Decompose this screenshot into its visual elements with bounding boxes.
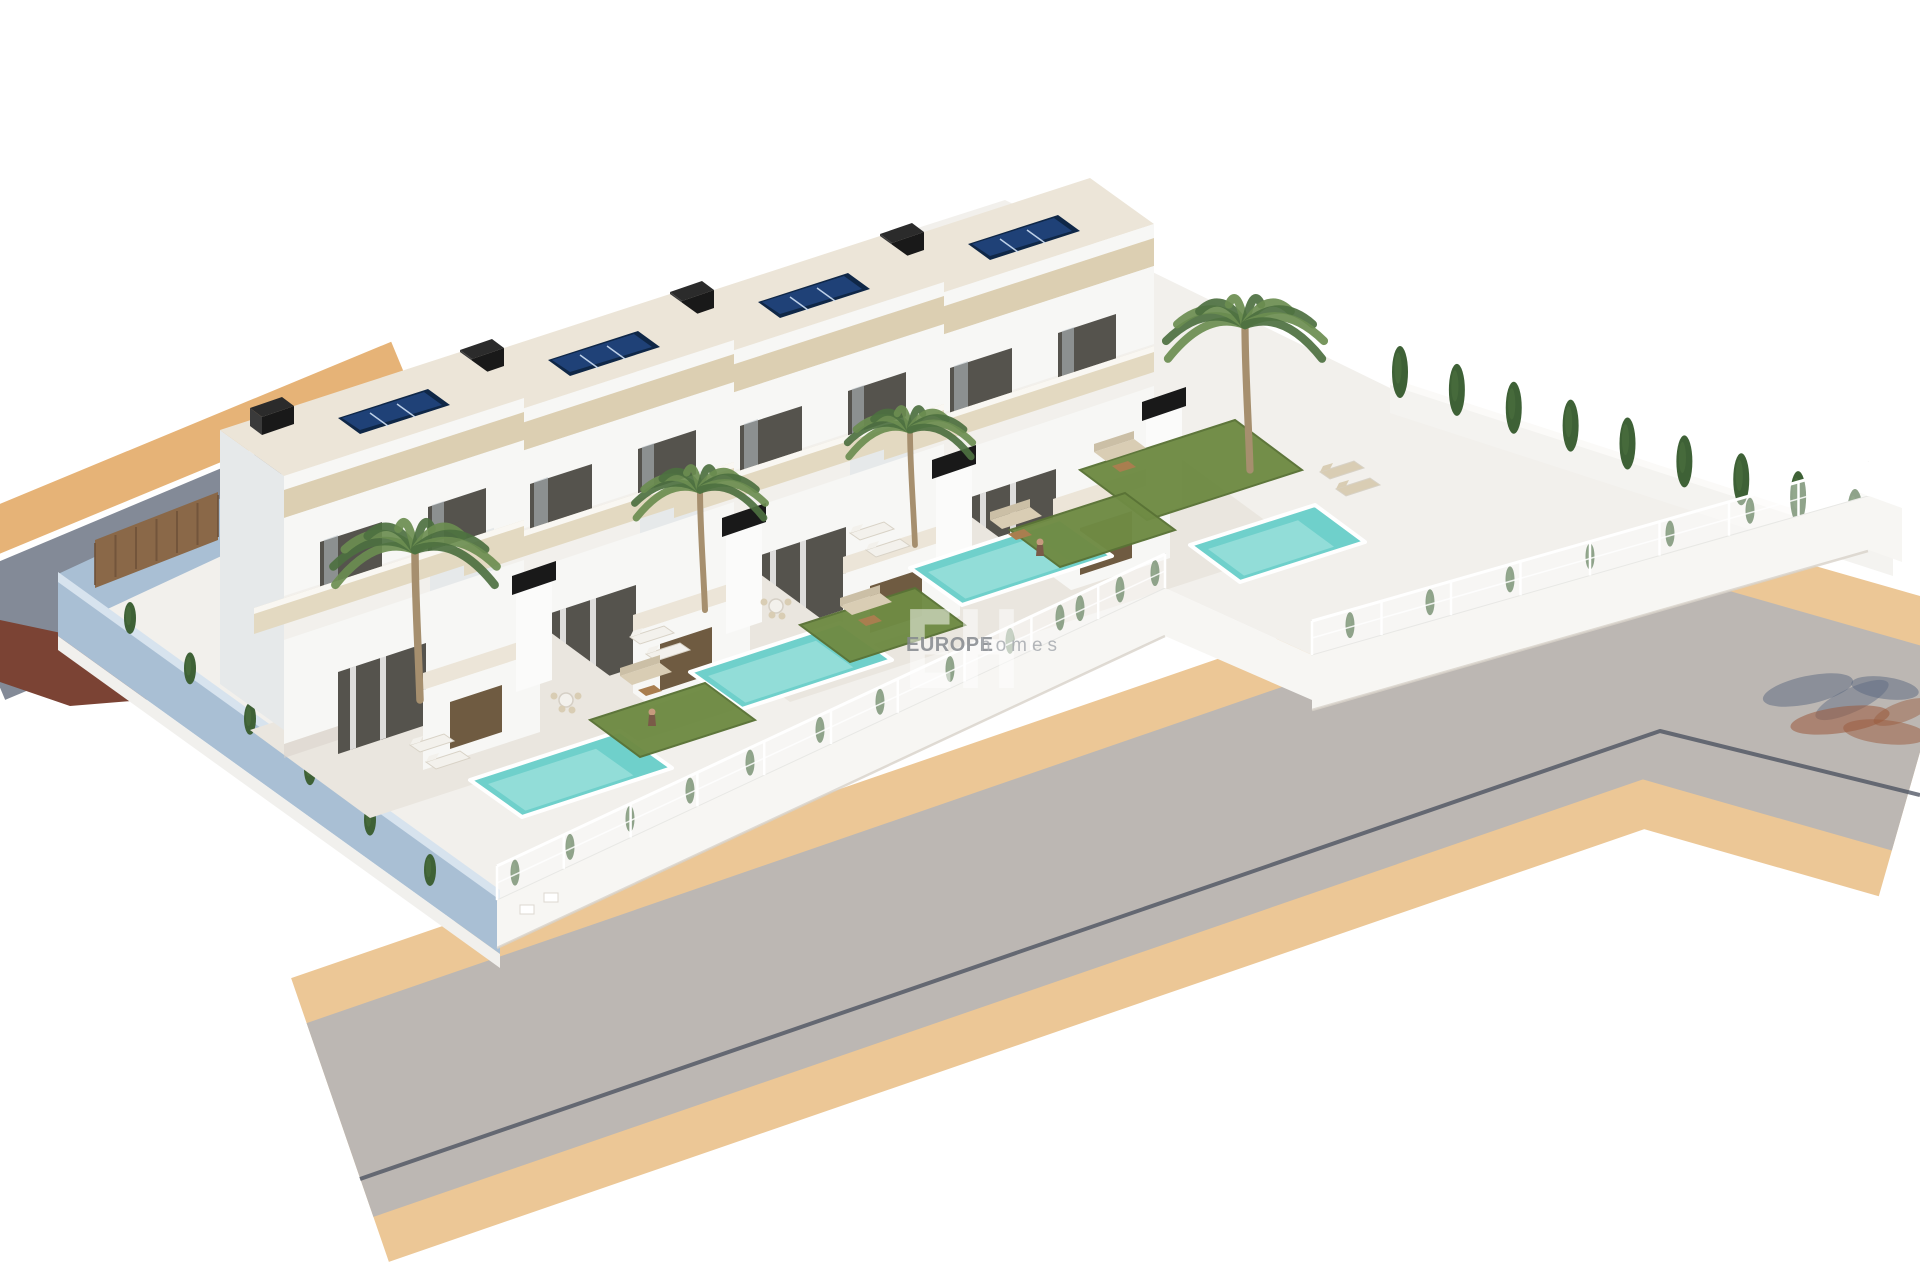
door-mullion: [380, 656, 386, 740]
cypress-highlight: [186, 656, 191, 675]
villa-side-wall: [220, 430, 284, 730]
person-body: [1036, 545, 1044, 556]
cypress-highlight: [1679, 442, 1686, 473]
chimney-stack: [516, 576, 552, 692]
dining-chair: [769, 612, 776, 619]
cypress-highlight: [1508, 388, 1515, 419]
dining-chair: [569, 707, 576, 714]
dining-chair: [575, 693, 582, 700]
dining-table: [559, 693, 573, 707]
dining-chair: [761, 599, 768, 606]
cypress-highlight: [1451, 370, 1458, 401]
utility-box: [520, 905, 534, 914]
cypress-highlight: [1622, 424, 1629, 455]
chimney-stack: [726, 518, 762, 634]
dining-chair: [779, 613, 786, 620]
person-head: [649, 709, 656, 716]
dining-chair: [785, 599, 792, 606]
cypress-highlight: [126, 606, 131, 625]
dining-chair: [551, 693, 558, 700]
person-head: [1037, 539, 1044, 546]
cypress-highlight: [1736, 460, 1743, 491]
villa-render: EH EUROPE homes: [0, 0, 1920, 1280]
render-canvas: EH EUROPE homes: [0, 0, 1920, 1280]
dining-table: [769, 599, 783, 613]
door-mullion: [350, 666, 356, 750]
dining-chair: [559, 706, 566, 713]
cypress-highlight: [426, 858, 431, 877]
watermark-suffix-text: homes: [980, 635, 1062, 656]
cypress-highlight: [1394, 353, 1401, 384]
utility-box: [544, 893, 558, 902]
person-body: [648, 715, 656, 726]
cypress-highlight: [1565, 406, 1572, 437]
cypress-highlight: [246, 707, 251, 726]
